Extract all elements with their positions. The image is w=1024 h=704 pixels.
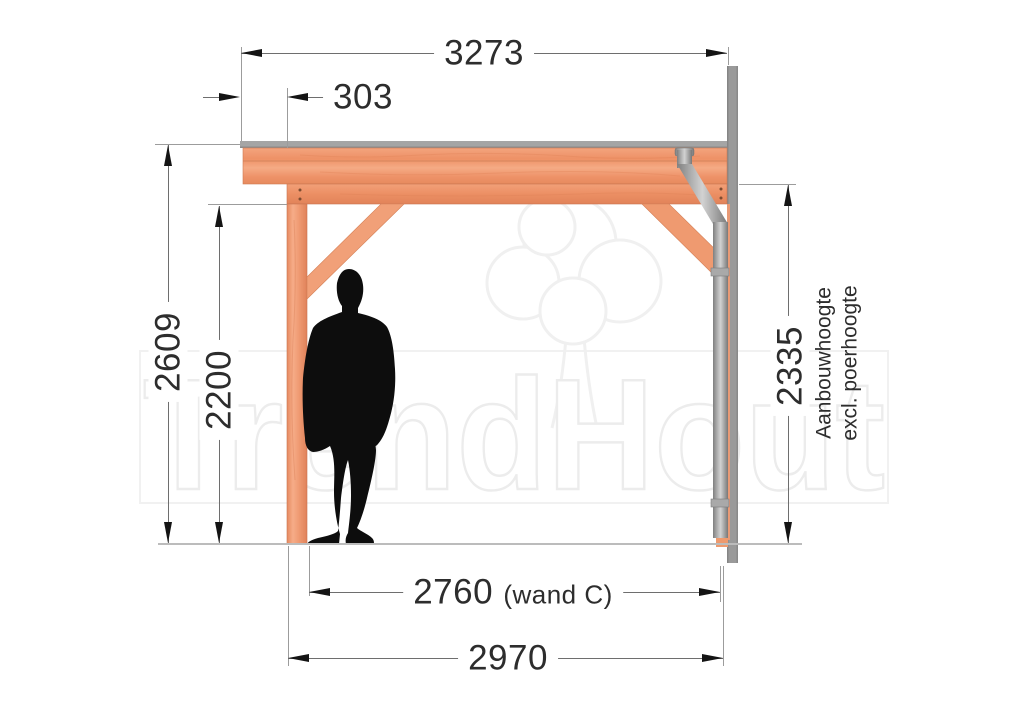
dim-label-clear-height: 2200: [200, 340, 239, 440]
extension-line: [288, 546, 289, 666]
inner-width-value: 2760: [413, 573, 493, 612]
dim-label-attach-height: 2335: [771, 316, 810, 416]
dim-arrow: [784, 185, 792, 206]
main-beam: [287, 184, 727, 204]
dim-arrow: [241, 49, 262, 57]
wall-post-foot: [716, 537, 728, 547]
ground-line: [158, 543, 802, 545]
dim-arrow: [702, 654, 723, 662]
person-silhouette: [303, 269, 396, 544]
drainpipe: [675, 148, 729, 538]
extension-line: [208, 204, 287, 205]
dim-arrow: [288, 654, 309, 662]
dim-label-bottom-width: 2970: [458, 639, 558, 678]
fascia-beam: [243, 148, 727, 184]
extension-line: [728, 47, 729, 65]
attach-height-note-line1: Aanbouwhoogte: [814, 287, 835, 439]
attach-height-note-line2: excl. poerhoogte: [840, 285, 861, 440]
dim-arrow: [215, 522, 223, 543]
dim-arrow: [309, 588, 330, 596]
extension-line: [241, 47, 242, 141]
dim-arrow: [219, 93, 240, 101]
dim-arrow: [706, 49, 727, 57]
diagram-canvas: TrendHout: [0, 0, 1024, 704]
extension-line: [723, 566, 724, 666]
extension-line: [720, 566, 721, 602]
dim-label-top-width: 3273: [434, 34, 534, 73]
inner-width-note: (wand C): [503, 580, 612, 610]
dim-label-overhang: 303: [323, 78, 403, 117]
dim-arrow: [215, 206, 223, 227]
dim-label-left-height: 2609: [149, 302, 188, 402]
dim-arrow: [164, 522, 172, 543]
dim-arrow: [699, 588, 720, 596]
dim-arrow: [784, 522, 792, 543]
roof-panel: [240, 141, 727, 148]
dim-label-inner-width: 2760 (wand C): [403, 573, 623, 612]
dim-arrow: [287, 93, 308, 101]
dim-arrow: [164, 145, 172, 166]
